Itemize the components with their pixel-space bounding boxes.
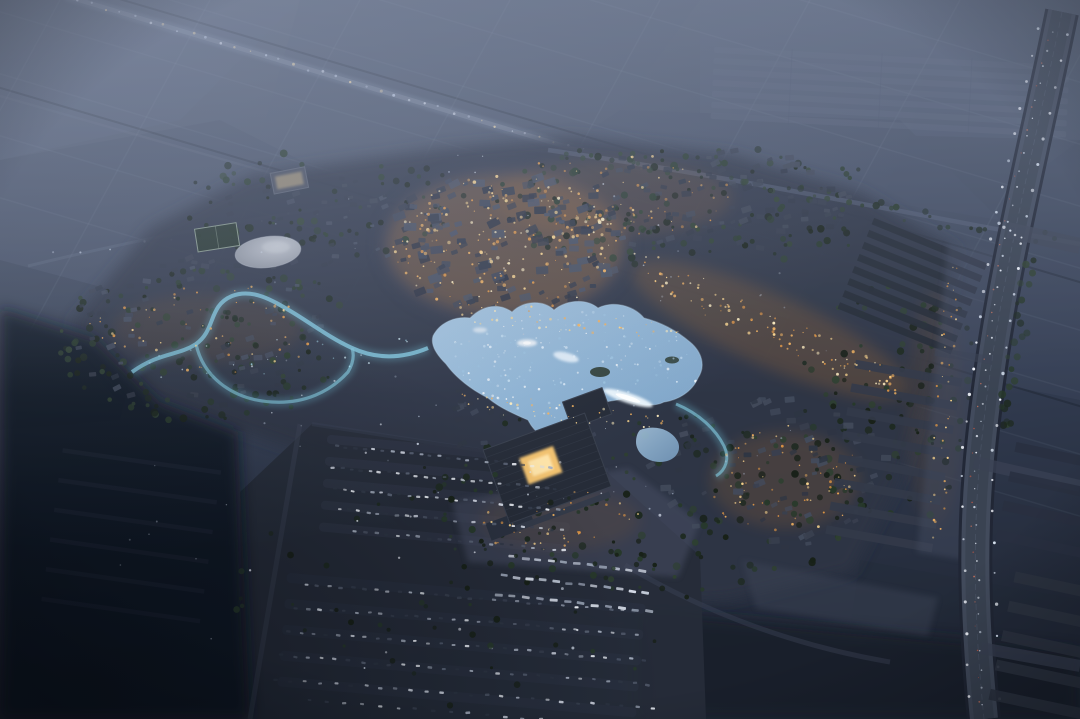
scene-canvas bbox=[0, 0, 1080, 719]
aerial-night-rendering bbox=[0, 0, 1080, 719]
vignette-bottom-left bbox=[0, 0, 1080, 719]
